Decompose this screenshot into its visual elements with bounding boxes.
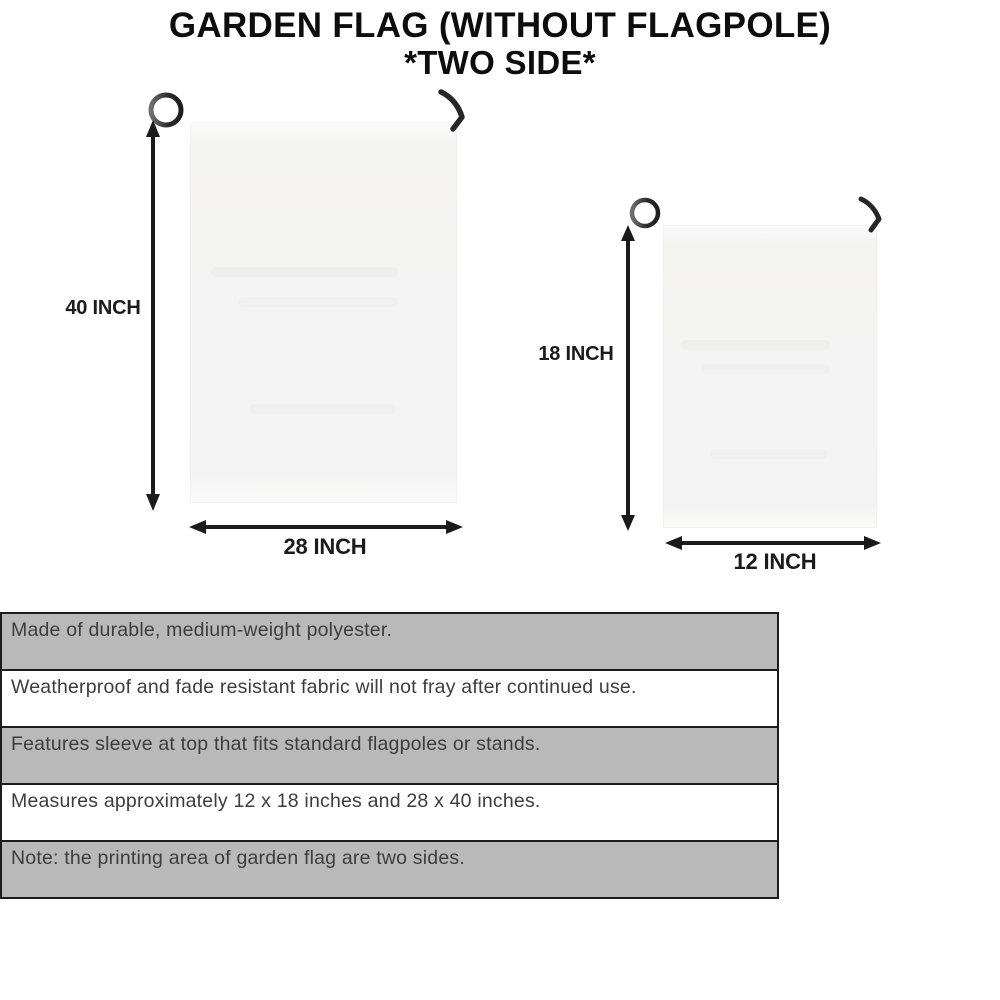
feature-row: Made of durable, medium-weight polyester… [2,614,777,671]
width-arrow-small [665,536,881,550]
hanger-hook-large-icon [441,92,462,129]
feature-row: Note: the printing area of garden flag a… [2,842,777,897]
width-label-small: 12 INCH [700,549,850,575]
diagram-hardware-and-arrows [0,0,1000,620]
feature-row: Features sleeve at top that fits standar… [2,728,777,785]
height-label-small: 18 INCH [530,343,622,366]
feature-row: Weatherproof and fade resistant fabric w… [2,671,777,728]
hanger-hook-small-icon [861,199,879,230]
hanger-loop-small-icon [632,200,658,226]
width-label-large: 28 INCH [250,534,400,560]
hanger-loop-large-icon [151,95,181,125]
height-label-large: 40 INCH [57,297,149,320]
feature-row: Measures approximately 12 x 18 inches an… [2,785,777,842]
product-size-diagram: GARDEN FLAG (WITHOUT FLAGPOLE) *TWO SIDE… [0,0,1000,1000]
height-arrow-small [621,225,635,531]
feature-panel: Made of durable, medium-weight polyester… [0,612,779,899]
width-arrow-large [189,520,463,534]
